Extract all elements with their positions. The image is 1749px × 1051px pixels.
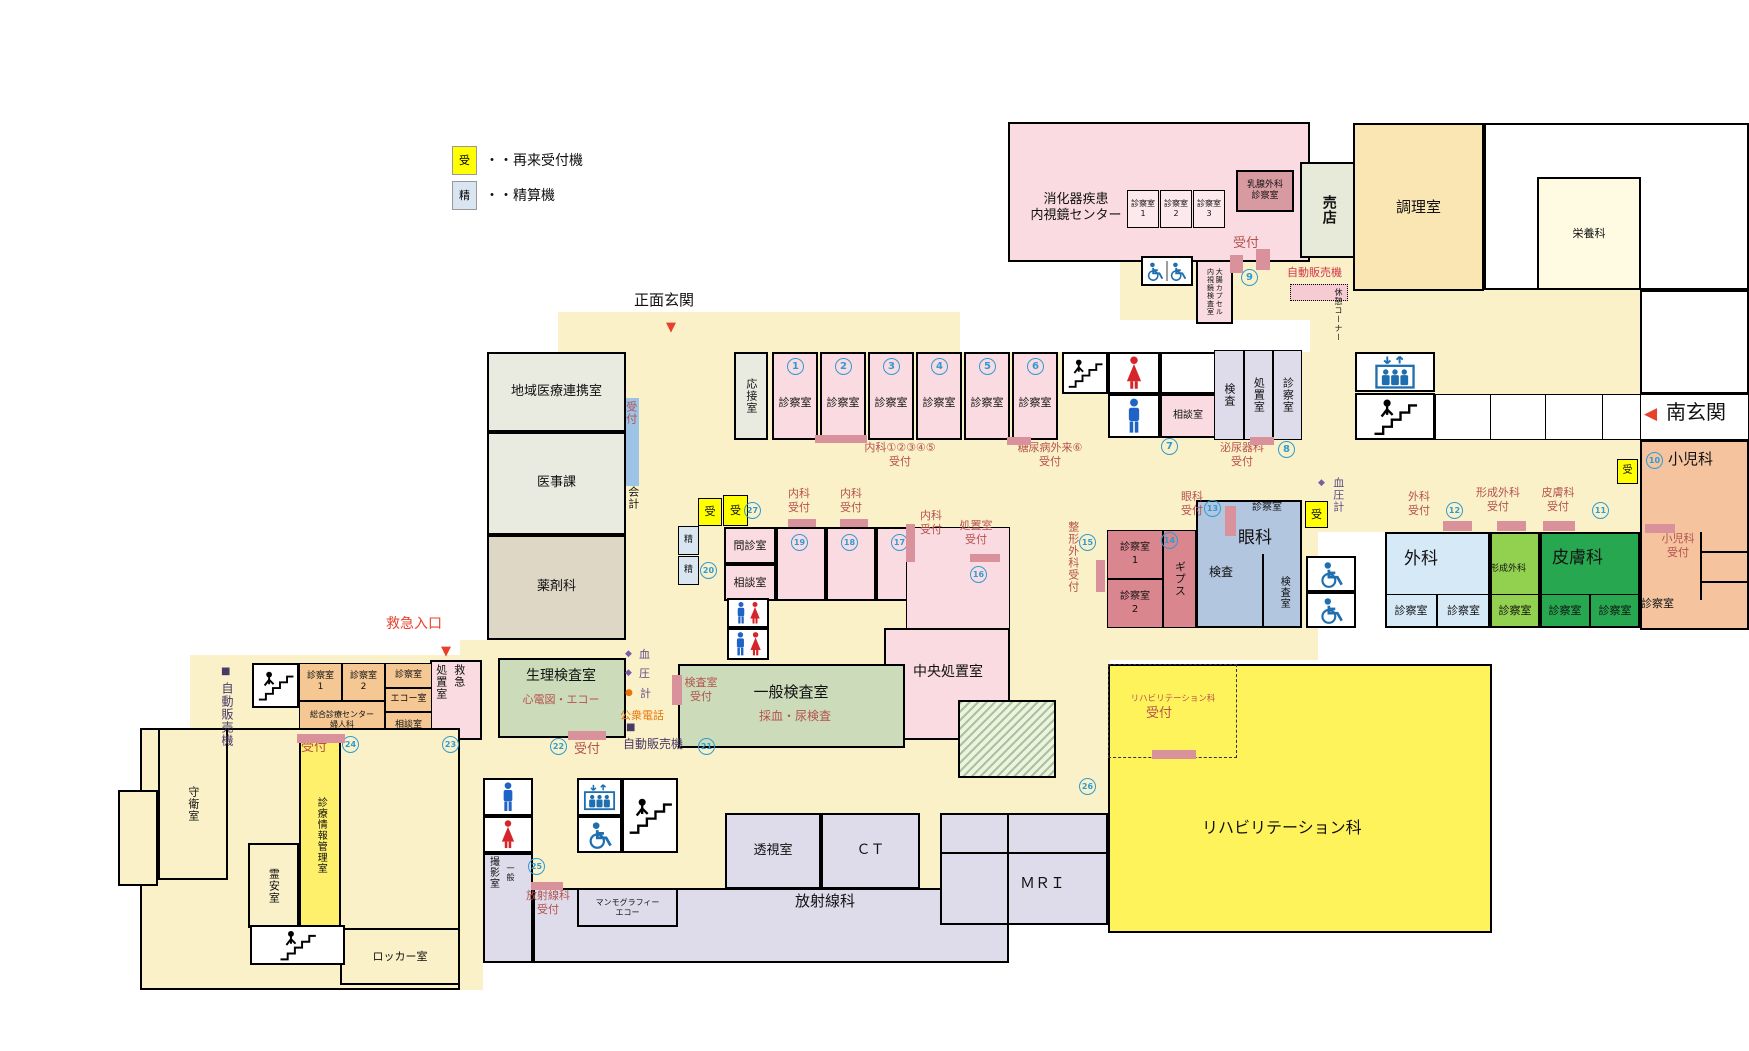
reception-counter-bar xyxy=(1443,521,1472,531)
reception-counter-bar xyxy=(531,882,563,890)
stairs-icon xyxy=(255,666,296,705)
fluoroscopy-room: 透視室 xyxy=(725,813,821,889)
wheelchair-icon xyxy=(1309,595,1353,625)
marker-11: 11 xyxy=(1592,502,1609,519)
ortho-exam-room-1: 診察室 1 xyxy=(1107,530,1163,579)
capsule-endoscopy-room: 大腸カプセル 内視鏡検査室 xyxy=(1196,260,1233,324)
central-treatment-label: 中央処置室 xyxy=(898,664,998,682)
marker-23: 23 xyxy=(442,736,459,753)
kitchen: 調理室 xyxy=(1353,123,1484,291)
pediatrics-label: 小児科 xyxy=(1668,450,1713,469)
derma-exam-1: 診察室 xyxy=(1540,594,1590,628)
internal-med-reception-2: 内科 受付 xyxy=(828,487,874,515)
marker-16: 16 xyxy=(970,566,987,583)
ortho-reception: 整形外科受付 xyxy=(1066,521,1080,593)
radiology-label: 放射線科 xyxy=(795,892,855,911)
reception-counter-bar xyxy=(906,524,915,562)
locker-room: ロッカー室 xyxy=(340,928,460,985)
rest-corner-label: 休憩コーナー xyxy=(1333,288,1343,342)
gp-exam-room-2: 診察室 2 xyxy=(342,663,385,701)
marker-14: 14 xyxy=(1161,532,1178,549)
diabetes-reception: 糖尿病外来⑥ 受付 xyxy=(998,441,1102,469)
derma-dept-label: 皮膚科 xyxy=(1552,548,1603,569)
marker-3: 3 xyxy=(883,358,900,375)
shop: 売店 xyxy=(1300,162,1356,258)
male-female-icon xyxy=(730,631,766,657)
xray-room-label: 撮影室 xyxy=(486,856,499,889)
pediatrics-reception: 小児科 受付 xyxy=(1652,532,1704,560)
payment-machine-a: 精 xyxy=(678,526,699,555)
urology-exam-room: 診察室 xyxy=(1273,350,1302,440)
consultation-room-b: 相談室 xyxy=(724,564,776,601)
public-phone-label: 公衆電話 xyxy=(620,709,664,723)
reception-main-label: 受付 xyxy=(624,401,638,425)
female-icon xyxy=(486,819,530,850)
eye-exam-label: 診察室 xyxy=(1252,502,1282,515)
gp-exam-room-3: 診察室 xyxy=(385,663,432,688)
marker-5: 5 xyxy=(979,358,996,375)
marker-2: 2 xyxy=(835,358,852,375)
mri-label: ＭＲＩ xyxy=(1020,874,1065,893)
urology-reception: 泌尿器科 受付 xyxy=(1204,441,1280,469)
main-entrance-label: 正面玄関 xyxy=(634,291,694,310)
regional-medical-liaison-office: 地域医療連携室 xyxy=(487,352,626,432)
payment-machine-legend-box: 精 xyxy=(452,181,477,210)
hatched-area xyxy=(958,700,1056,778)
hospital-floor-map: 受 ・・再来受付機 精 ・・精算機 診察室 1診察室 2診察室 3乳腺外科 診察… xyxy=(0,0,1749,1051)
reception-counter-bar xyxy=(297,734,345,743)
reception-counter-bar xyxy=(1543,521,1575,531)
reception-counter-bar xyxy=(1230,255,1243,273)
bp-marker-2: ◆ xyxy=(625,668,632,679)
exam-label-4: 診察室 xyxy=(918,396,960,410)
plastic-reception: 形成外科 受付 xyxy=(1464,486,1532,514)
ct-room: ＣＴ xyxy=(821,813,920,889)
er-entrance-label: 救急入口 xyxy=(386,616,442,634)
wheelchair-pair-icon xyxy=(1144,259,1190,283)
legend-row-payment: 精 ・・精算機 xyxy=(452,181,583,209)
vending-label-shop: 自動販売機 xyxy=(1287,266,1342,280)
physiology-lab-label: 生理検査室 xyxy=(500,668,622,686)
marker-22: 22 xyxy=(550,738,567,755)
bp-eye-label: 血圧計 xyxy=(1331,477,1345,513)
treatment-room-reception: 処置室 受付 xyxy=(946,519,1006,547)
recheck-machine-a: 受 xyxy=(698,498,722,526)
surgery-exam-2: 診察室 xyxy=(1437,594,1490,628)
recheck-machine-eye: 受 xyxy=(1305,501,1328,528)
reception-counter-bar xyxy=(970,554,1000,562)
urology-inspection: 検査 xyxy=(1214,350,1244,440)
gp-exam-room-1: 診察室 1 xyxy=(299,663,342,701)
payment-machine-b: 精 xyxy=(678,556,699,585)
recheck-machine-ped: 受 xyxy=(1617,459,1638,484)
marker-21: 21 xyxy=(698,738,715,755)
reception-22-label: 受付 xyxy=(574,742,600,758)
female-icon xyxy=(1111,355,1157,391)
xray-general-label: 一般 xyxy=(505,864,515,882)
south-entrance-label: 南玄関 xyxy=(1666,400,1726,425)
er-entrance-arrow: ▼ xyxy=(441,644,451,660)
plastic-dept-label: 形成外科 xyxy=(1490,564,1526,575)
legend-row-recheck: 受 ・・再来受付機 xyxy=(452,146,583,174)
bp-marker-1: ◆ xyxy=(625,649,632,660)
reception-counter-bar xyxy=(840,519,868,527)
marker-8: 8 xyxy=(1278,441,1295,458)
bp-char-2: 圧 xyxy=(639,667,650,681)
marker-26: 26 xyxy=(1079,778,1096,795)
hall-cell-3 xyxy=(1545,394,1604,440)
eye-exam-lab: 検査室 xyxy=(1264,556,1302,628)
legend: 受 ・・再来受付機 精 ・・精算機 xyxy=(452,146,583,216)
legend-payment-label: ・・精算機 xyxy=(485,185,555,205)
surgery-exam-1: 診察室 xyxy=(1385,594,1437,628)
vend-square-left: ■ xyxy=(221,666,230,679)
male-female-icon xyxy=(730,601,766,625)
reception-counter-bar xyxy=(1152,750,1196,759)
consultation-room-a: 相談室 xyxy=(1160,394,1216,438)
endoscopy-exam-room-3: 診察室 3 xyxy=(1193,190,1225,228)
main-entrance-arrow: ▼ xyxy=(666,320,676,336)
wheelchair-icon xyxy=(1309,559,1353,589)
stairs-icon xyxy=(1065,355,1105,391)
hall-cell-2 xyxy=(1490,394,1547,440)
wheelchair-icon xyxy=(580,819,619,850)
marker-27: 27 xyxy=(744,502,761,519)
marker-15: 15 xyxy=(1079,534,1096,551)
reception-counter-bar xyxy=(1497,521,1526,531)
reception-counter-bar xyxy=(1645,524,1675,533)
rehab-reception-area xyxy=(1108,664,1237,758)
reception-counter-bar xyxy=(815,435,867,443)
vend-left-label: 自動販売機 xyxy=(219,682,234,747)
radiology-reception: 放射線科 受付 xyxy=(517,889,579,917)
marker-25: 25 xyxy=(528,858,545,875)
exam-label-2: 診察室 xyxy=(822,396,864,410)
reception-counter-bar xyxy=(568,731,606,740)
top-right-block-2 xyxy=(1640,290,1749,394)
eye-inspection-label: 検査 xyxy=(1209,565,1233,580)
wall-line xyxy=(1262,554,1264,628)
bottom-left-bump xyxy=(118,790,158,886)
elevator-icon xyxy=(1358,355,1432,389)
reception-counter-bar xyxy=(672,675,682,705)
exam-label-1: 診察室 xyxy=(774,396,816,410)
bp-char-3: 計 xyxy=(640,687,651,701)
rehab-reception-small: リハビリテーション科 xyxy=(1112,694,1234,705)
elevator-icon xyxy=(580,781,619,813)
exam-label-3: 診察室 xyxy=(870,396,912,410)
reception-counter-bar xyxy=(1225,506,1236,536)
er-room-right-label: 救急 xyxy=(452,664,466,688)
general-lab-sub: 採血・尿検査 xyxy=(740,709,850,724)
er-room-left-label: 処置室 xyxy=(434,664,448,700)
stairs-icon xyxy=(1358,396,1432,437)
internal-med-reception-12345: 内科①②③④⑤ 受付 xyxy=(846,441,954,469)
south-entrance-arrow: ◀ xyxy=(1644,404,1657,425)
nutrition-dept: 栄養科 xyxy=(1537,177,1641,290)
derma-reception: 皮膚科 受付 xyxy=(1530,486,1586,514)
wall-line xyxy=(940,852,1108,854)
recheck-machine-legend-box: 受 xyxy=(452,146,477,175)
wall-line xyxy=(1007,813,1009,925)
marker-20: 20 xyxy=(700,562,717,579)
reception-counter-bar xyxy=(788,519,816,527)
general-lab-label: 一般検査室 xyxy=(736,683,846,702)
spare-room xyxy=(1160,352,1216,394)
wall-line xyxy=(1700,551,1749,553)
wall-line xyxy=(1700,532,1702,600)
drawing-room: 応接室 xyxy=(734,352,768,440)
reception-counter-bar xyxy=(1096,560,1105,592)
medical-records-room: 診療情報管理室 xyxy=(299,735,341,935)
medical-affairs-division: 医事課 xyxy=(487,432,626,535)
male-icon xyxy=(1111,397,1157,435)
marker-13: 13 xyxy=(1204,500,1221,517)
stairs-icon xyxy=(253,928,342,962)
marker-9: 9 xyxy=(1241,269,1258,286)
echo-room: エコー室 xyxy=(385,688,432,712)
vend-square-center: ■ xyxy=(626,722,635,735)
wall-line xyxy=(1700,581,1749,583)
reception-counter-bar xyxy=(1007,437,1031,445)
pediatrics-exam-label: 診察室 xyxy=(1641,597,1674,611)
rehab-reception-label: 受付 xyxy=(1146,706,1172,722)
guard-room: 守衛室 xyxy=(158,728,228,880)
internal-med-reception-1: 内科 受付 xyxy=(776,487,822,515)
gastro-center-label: 消化器疾患 内視鏡センター xyxy=(1012,192,1140,225)
exam-label-5: 診察室 xyxy=(966,396,1008,410)
pharmacy-dept: 薬剤科 xyxy=(487,535,626,640)
urology-treatment-room: 処置室 xyxy=(1244,350,1273,440)
vend-center-label: 自動販売機 xyxy=(623,737,683,752)
legend-recheck-label: ・・再来受付機 xyxy=(485,150,583,170)
male-icon xyxy=(486,781,530,813)
bp-marker-3: ● xyxy=(625,688,633,699)
reception-counter-bar xyxy=(1256,249,1270,270)
surgery-dept-label: 外科 xyxy=(1404,549,1438,570)
rehab-dept-label: リハビリテーション科 xyxy=(1202,818,1362,838)
derma-exam-2: 診察室 xyxy=(1590,594,1640,628)
physiology-lab-sub: 心電図・エコー xyxy=(500,693,622,707)
mammography-echo-room: マンモグラフィー エコー xyxy=(577,888,678,927)
cashier-label: 会計 xyxy=(626,486,640,510)
marker-6: 6 xyxy=(1027,358,1044,375)
hall-cell-1 xyxy=(1435,394,1492,440)
mortuary: 霊安室 xyxy=(248,843,299,928)
surgery-reception: 外科 受付 xyxy=(1396,490,1442,518)
marker-19: 19 xyxy=(791,534,808,551)
reception-counter-bar xyxy=(1250,437,1274,445)
ortho-exam-room-2: 診察室 2 xyxy=(1107,579,1163,628)
plastic-exam: 診察室 xyxy=(1490,594,1540,628)
mri-block xyxy=(940,813,1108,925)
stairs-icon xyxy=(625,781,675,850)
endoscopy-exam-room-2: 診察室 2 xyxy=(1160,190,1192,228)
marker-12: 12 xyxy=(1446,502,1463,519)
exam-label-6: 診察室 xyxy=(1014,396,1056,410)
lab-reception: 検査室 受付 xyxy=(676,676,726,704)
marker-1: 1 xyxy=(787,358,804,375)
eye-dept-label: 眼科 xyxy=(1238,528,1272,549)
marker-10: 10 xyxy=(1646,452,1663,469)
corridor-area xyxy=(558,312,960,354)
marker-4: 4 xyxy=(931,358,948,375)
marker-7: 7 xyxy=(1161,438,1178,455)
interview-room: 問診室 xyxy=(724,527,776,564)
marker-18: 18 xyxy=(841,534,858,551)
bp-char-1: 血 xyxy=(639,648,650,662)
hall-cell-4 xyxy=(1602,394,1642,440)
bp-eye-marker: ◆ xyxy=(1318,478,1325,489)
breast-surgery-exam-room: 乳腺外科 診察室 xyxy=(1236,170,1294,212)
